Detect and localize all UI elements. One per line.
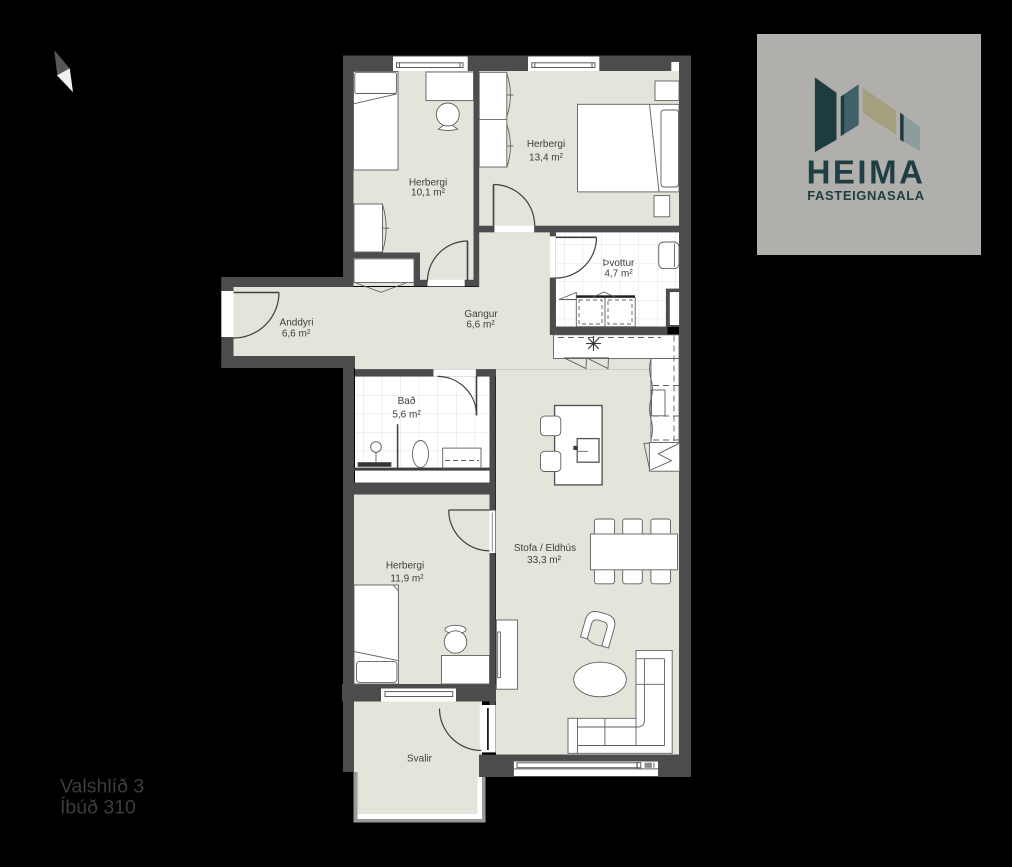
svg-text:4,7 m²: 4,7 m² — [604, 269, 633, 280]
svg-text:Herbergi: Herbergi — [386, 561, 424, 572]
svg-text:Anddyri: Anddyri — [280, 318, 314, 329]
svg-text:HEIMA: HEIMA — [807, 154, 926, 191]
svg-text:Herbergi: Herbergi — [527, 139, 565, 150]
svg-text:Íbúð 310: Íbúð 310 — [60, 796, 136, 819]
svg-text:13,4 m²: 13,4 m² — [529, 153, 564, 164]
svg-text:5,6 m²: 5,6 m² — [392, 410, 421, 421]
svg-text:6,6 m²: 6,6 m² — [466, 320, 495, 331]
svg-text:Gangur: Gangur — [464, 309, 498, 320]
svg-text:Stofa / Eldhús: Stofa / Eldhús — [514, 543, 576, 554]
svg-text:Þvottur: Þvottur — [603, 258, 635, 269]
svg-text:Svalir: Svalir — [407, 754, 433, 765]
svg-text:Valshlíð 3: Valshlíð 3 — [60, 776, 144, 798]
svg-text:11,9 m²: 11,9 m² — [390, 574, 424, 585]
svg-text:33,3 m²: 33,3 m² — [527, 555, 562, 566]
svg-text:6,6 m²: 6,6 m² — [282, 329, 311, 340]
svg-text:10,1 m²: 10,1 m² — [411, 188, 446, 199]
svg-text:FASTEIGNASALA: FASTEIGNASALA — [807, 188, 925, 203]
svg-text:Bað: Bað — [398, 395, 416, 407]
